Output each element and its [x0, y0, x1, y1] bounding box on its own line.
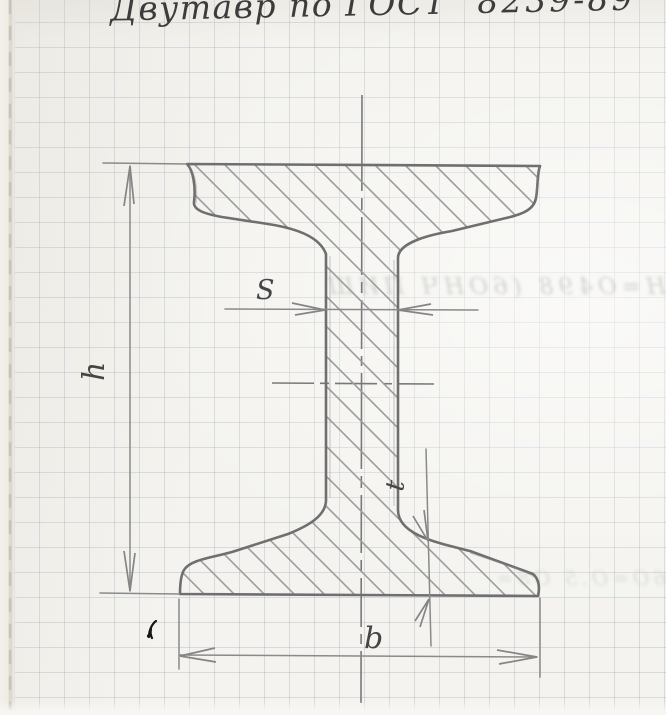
- s-dimension-line: [225, 309, 478, 310]
- ibeam-outline: [180, 164, 540, 596]
- dim-label-h: h: [77, 362, 112, 381]
- t-arrow-up: [415, 599, 429, 627]
- ink-mark: [149, 621, 156, 638]
- ink-mark-dot: [147, 634, 150, 637]
- b-dimension-line: [180, 655, 537, 657]
- ibeam-cross-section-drawing: h b S t: [0, 0, 666, 715]
- notebook-page: Двутавр по ГОСТ8239-89 Н=О498 (6ОНЧ ПИШ …: [0, 0, 666, 715]
- h-extension-line-bottom: [100, 593, 179, 594]
- paper-bottom-edge: [0, 701, 666, 715]
- h-extension-line-top: [103, 163, 186, 164]
- dim-label-s: S: [256, 275, 275, 306]
- h-arrow-up: [124, 166, 134, 206]
- dim-label-b: b: [364, 621, 383, 656]
